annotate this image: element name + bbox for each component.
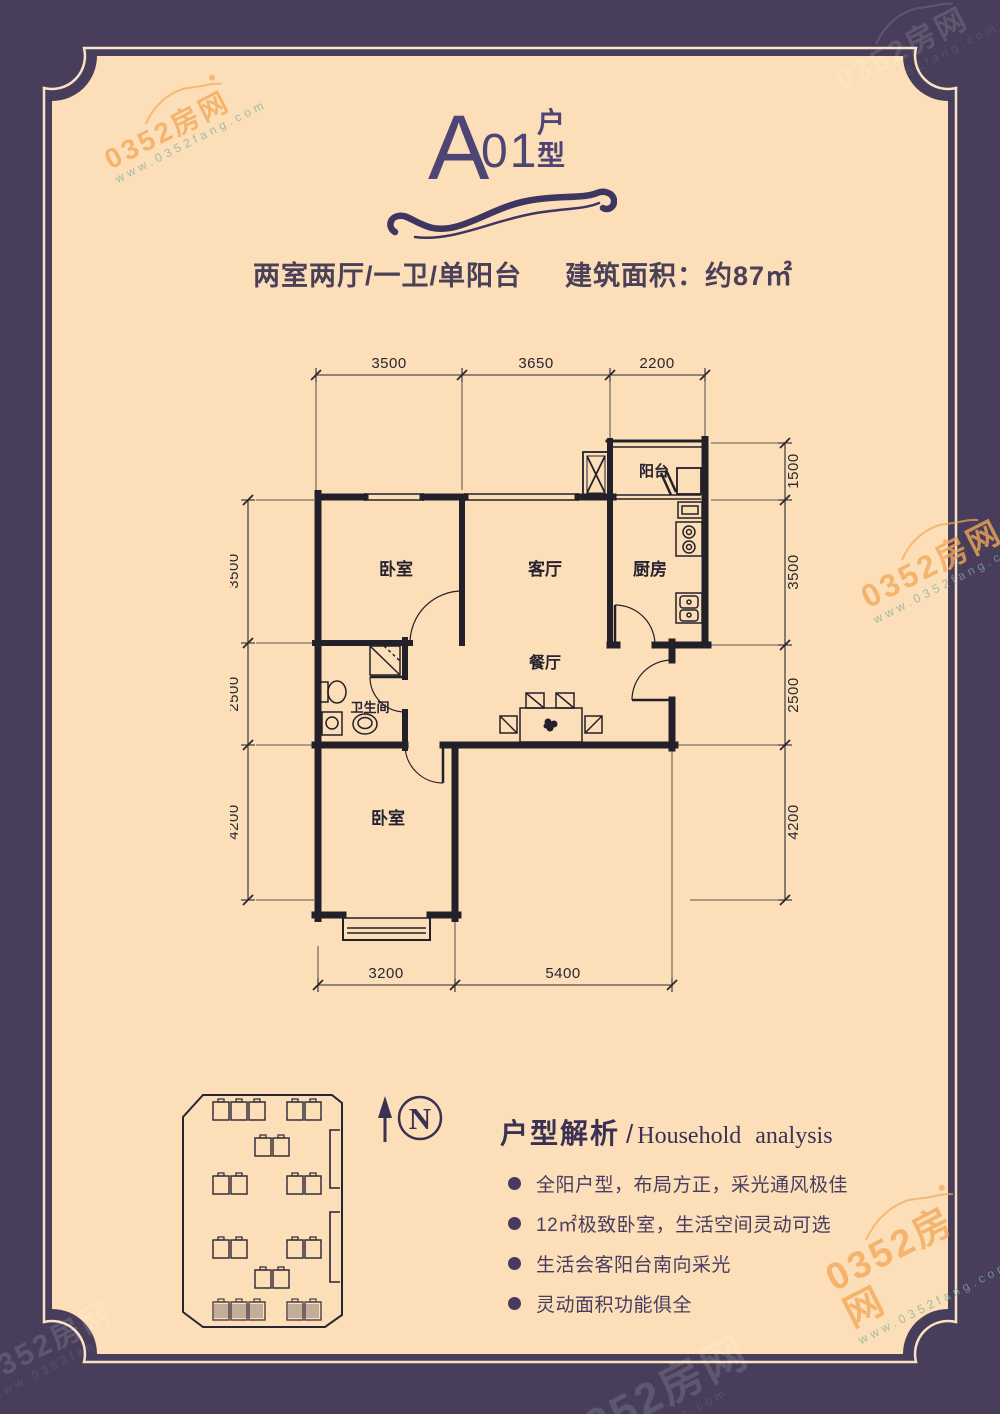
north-arrow-icon: N <box>365 1092 465 1152</box>
plant-icon <box>544 719 558 732</box>
room-label-dining: 餐厅 <box>528 653 561 672</box>
bathroom-fixtures <box>320 646 400 735</box>
site-plan <box>150 1085 360 1340</box>
unit-title-number: 01 <box>481 124 538 179</box>
room-label-bedroom-bottom: 卧室 <box>371 808 405 828</box>
analysis-heading: 户型解析 / Household analysis <box>500 1112 833 1152</box>
doors <box>370 591 672 783</box>
analysis-heading-en: Household analysis <box>637 1123 832 1150</box>
analysis-bullet: 灵动面积功能俱全 <box>508 1290 848 1317</box>
dim-bottom-1: 3200 <box>368 965 403 982</box>
dim-bottom-2: 5400 <box>545 965 580 982</box>
dim-top-1: 3500 <box>371 355 406 372</box>
analysis-heading-separator: / <box>626 1119 633 1150</box>
suffix-char: 户 <box>537 106 565 139</box>
room-label-living: 客厅 <box>527 559 562 579</box>
dim-right-2: 3500 <box>785 554 800 589</box>
analysis-bullet: 全阳户型，布局方正，采光通风极佳 <box>508 1170 848 1197</box>
dim-top-2: 3650 <box>518 355 553 372</box>
bullet-dot-icon <box>508 1177 521 1190</box>
suffix-char: 型 <box>537 139 565 172</box>
shaft <box>583 452 609 497</box>
poster-page: 0352房网 www.0352fang.com 0352房网 www.0352f… <box>0 0 1000 1414</box>
bullet-dot-icon <box>508 1217 521 1230</box>
analysis-bullet: 生活会客阳台南向采光 <box>508 1250 848 1277</box>
dim-left-3: 4200 <box>230 804 242 839</box>
layout-spec: 两室两厅/一卫/单阳台 <box>253 254 522 293</box>
analysis-heading-cn: 户型解析 <box>500 1112 620 1152</box>
dim-left-2: 2500 <box>230 676 242 711</box>
built-area: 建筑面积：约87㎡ <box>565 254 793 293</box>
bullet-dot-icon <box>508 1297 521 1310</box>
north-label: N <box>409 1101 431 1136</box>
dim-right-1: 1500 <box>785 453 800 488</box>
analysis-bullet: 12㎡极致卧室，生活空间灵动可选 <box>508 1210 848 1237</box>
dim-left-1: 3500 <box>230 553 242 588</box>
room-label-balcony: 阳台 <box>639 462 669 480</box>
dimension-lines <box>241 368 792 992</box>
bullet-dot-icon <box>508 1257 521 1270</box>
floor-plan: 3500 3650 2200 3500 2500 4200 1500 3500 … <box>230 350 800 1010</box>
dining-set <box>500 693 602 742</box>
room-label-kitchen: 厨房 <box>633 559 667 579</box>
dim-right-4: 4200 <box>785 804 800 839</box>
room-label-bathroom: 卫生间 <box>350 700 389 715</box>
unit-title-suffix: 户 型 <box>537 106 565 172</box>
kitchen-fixtures <box>676 502 702 623</box>
dim-right-3: 2500 <box>785 677 800 712</box>
flourish-icon <box>385 186 617 242</box>
walls <box>315 440 708 919</box>
dim-top-3: 2200 <box>639 355 674 372</box>
analysis-bullet-list: 全阳户型，布局方正，采光通风极佳 12㎡极致卧室，生活空间灵动可选 生活会客阳台… <box>508 1170 848 1330</box>
room-label-bedroom-top: 卧室 <box>379 559 413 579</box>
